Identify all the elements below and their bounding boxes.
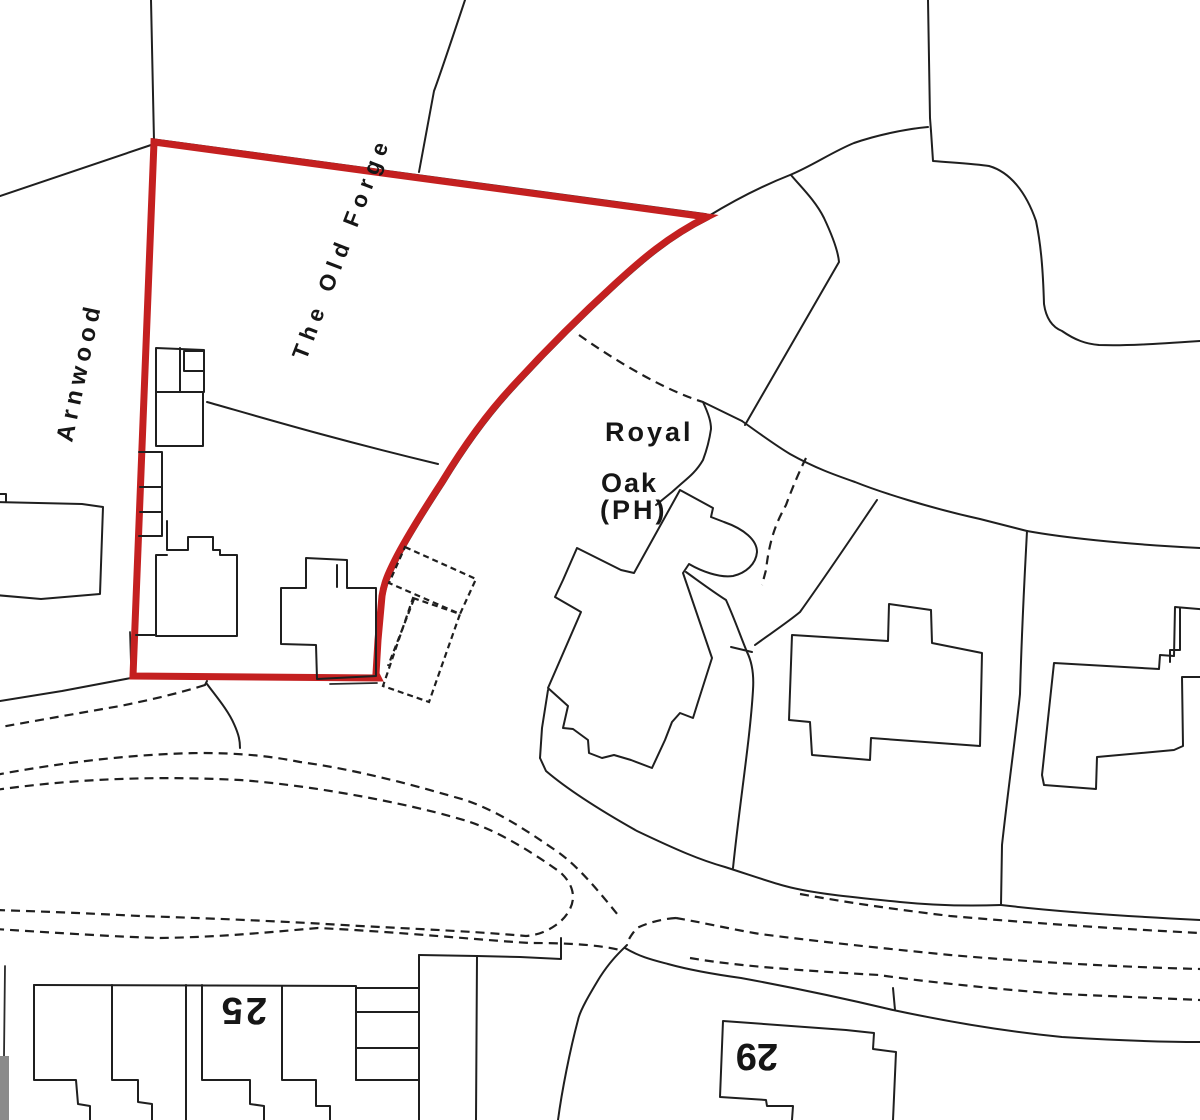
svg-text:Royal: Royal: [605, 417, 694, 447]
svg-text:25: 25: [219, 989, 267, 1031]
svg-text:(PH): (PH): [600, 495, 668, 525]
svg-text:29: 29: [736, 1035, 778, 1077]
svg-text:Oak: Oak: [601, 468, 658, 498]
